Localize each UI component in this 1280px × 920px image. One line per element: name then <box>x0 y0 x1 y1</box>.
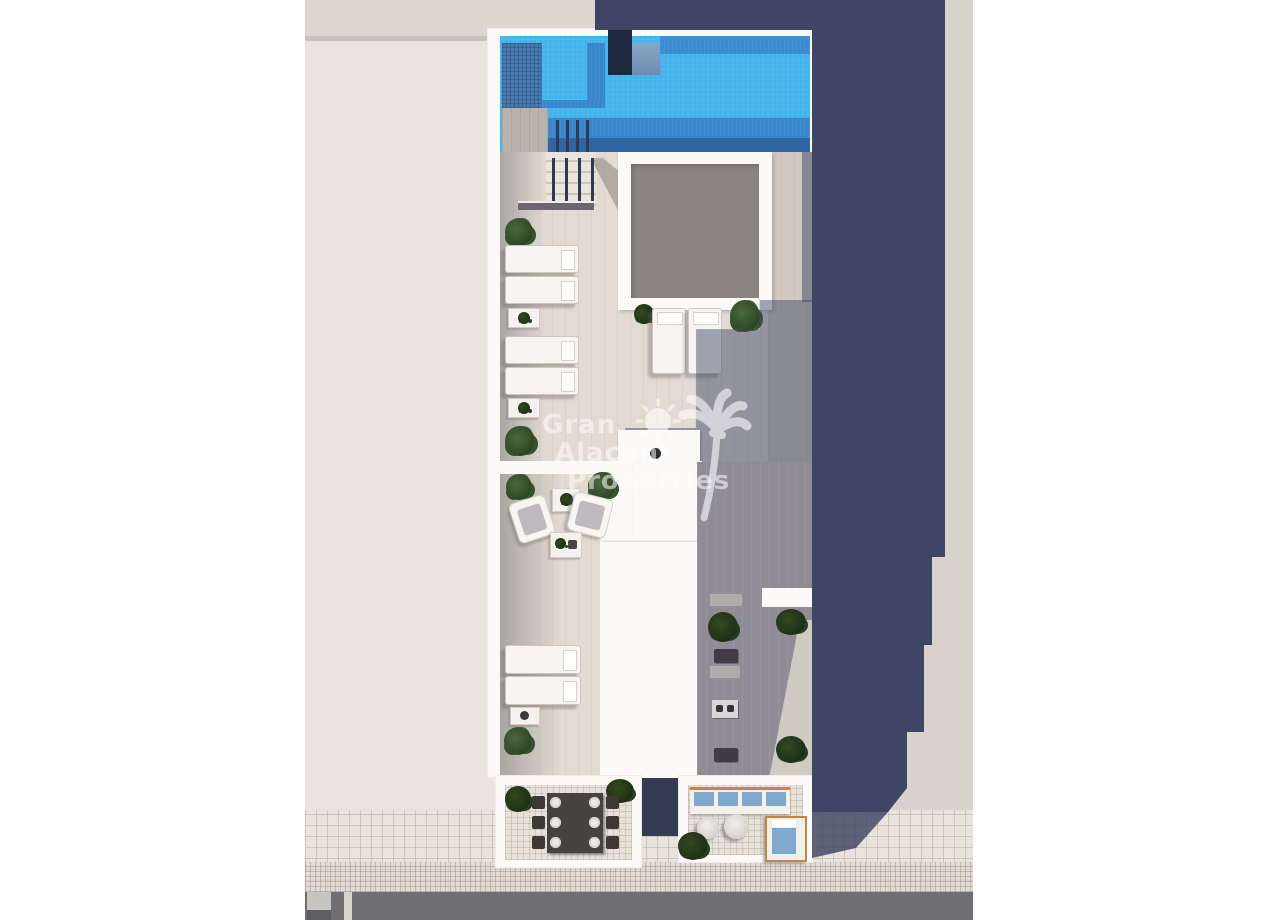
rooftop-floor-plan-render: Gran Alacant Properties <box>0 0 1280 920</box>
building-cast-shadow <box>0 0 1280 920</box>
